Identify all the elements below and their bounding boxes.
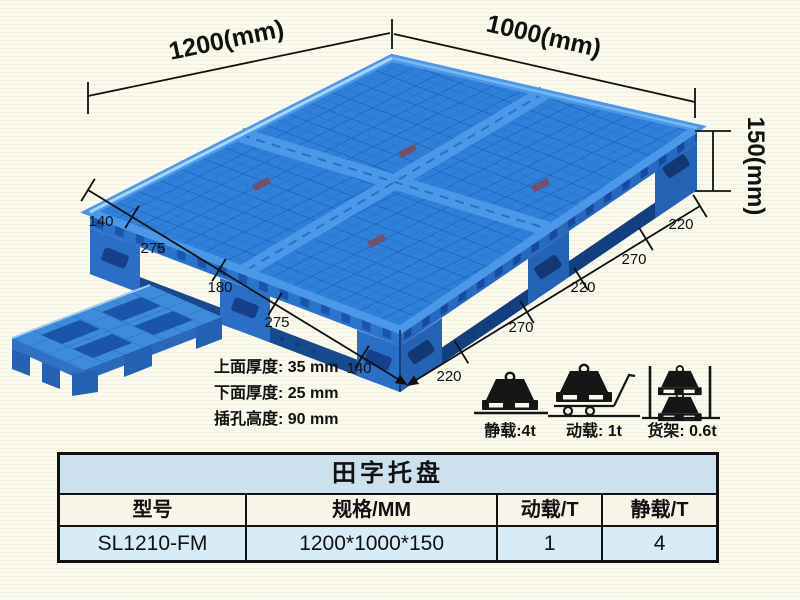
right-chain-value-1: 220 xyxy=(436,368,461,385)
header-spec-mm: 规格/MM xyxy=(245,495,496,525)
right-chain-value-2: 270 xyxy=(508,319,533,336)
left-chain-value-1: 140 xyxy=(88,213,113,230)
cell-static-load: 4 xyxy=(601,527,716,560)
cell-spec-mm: 1200*1000*150 xyxy=(245,527,496,560)
load-capacity-icons: 静载:4t 动载: 1t 货架: 0.6t xyxy=(474,365,720,440)
rack-load-icon xyxy=(642,366,720,421)
spec-table: 田字托盘 型号 规格/MM 动载/T 静载/T SL1210-FM 1200*1… xyxy=(57,452,719,563)
header-dynamic-load: 动载/T xyxy=(496,495,601,525)
header-static-load: 静载/T xyxy=(601,495,716,525)
static-load-icon xyxy=(474,373,548,413)
fork-opening-height-note: 插孔高度: 90 mm xyxy=(214,409,338,428)
cell-model: SL1210-FM xyxy=(60,527,245,560)
pallet-illustration: 1200(mm) 1000(mm) 150(mm) 140 275 180 27… xyxy=(0,0,800,452)
left-chain-value-3: 180 xyxy=(207,279,232,296)
left-chain-value-4: 275 xyxy=(264,314,289,331)
top-thickness-note: 上面厚度: 35 mm xyxy=(214,357,338,376)
thickness-notes: 上面厚度: 35 mm 下面厚度: 25 mm 插孔高度: 90 mm xyxy=(214,357,338,428)
left-chain-value-2: 275 xyxy=(140,240,165,257)
static-load-label: 静载:4t xyxy=(484,421,536,440)
width-dimension-label: 1000(mm) xyxy=(484,10,604,63)
spec-table-header-row: 型号 规格/MM 动载/T 静载/T xyxy=(60,495,716,527)
right-chain-value-3: 220 xyxy=(570,279,595,296)
cell-dynamic-load: 1 xyxy=(496,527,601,560)
dynamic-load-label: 动载: 1t xyxy=(566,422,623,440)
dynamic-load-icon xyxy=(548,365,640,416)
bottom-thickness-note: 下面厚度: 25 mm xyxy=(214,383,338,402)
header-model: 型号 xyxy=(60,495,245,525)
left-chain-value-5: 140 xyxy=(346,360,371,377)
dimension-height-150 xyxy=(695,131,731,191)
product-spec-page: 1200(mm) 1000(mm) 150(mm) 140 275 180 27… xyxy=(0,0,800,600)
spec-table-title: 田字托盘 xyxy=(60,455,716,495)
right-chain-value-4: 270 xyxy=(621,251,646,268)
spec-table-data-row: SL1210-FM 1200*1000*150 1 4 xyxy=(60,527,716,560)
height-dimension-label: 150(mm) xyxy=(742,117,769,216)
rack-load-label: 货架: 0.6t xyxy=(647,421,717,440)
right-chain-value-5: 220 xyxy=(668,216,693,233)
